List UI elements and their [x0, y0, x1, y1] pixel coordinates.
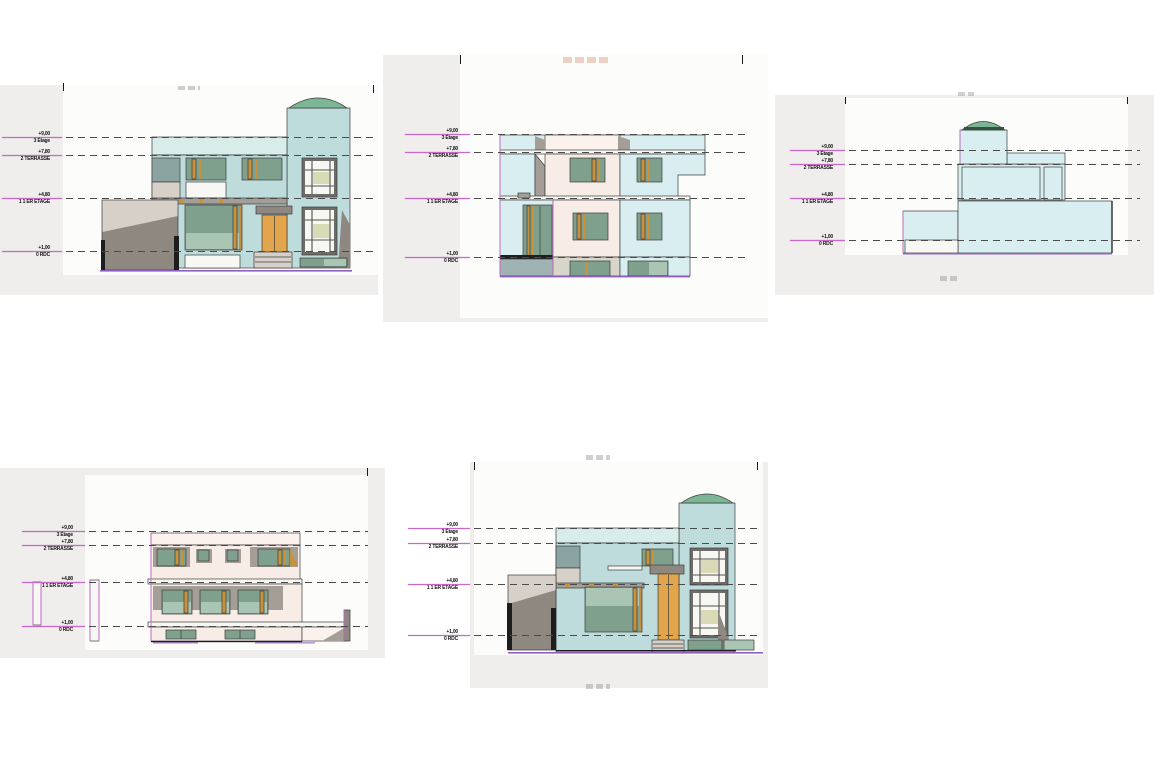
level-name: 0 RDC: [22, 627, 85, 633]
rear-elevation-drawing: [383, 55, 768, 322]
level-marker-3-etage: +9,00 3 Étage: [405, 128, 470, 141]
door-canopy: [256, 206, 292, 214]
level-name: 1 1 ER ETAGE: [2, 199, 62, 205]
level-dash-line: [89, 626, 368, 627]
front-elevation-drawing: [0, 85, 378, 295]
stepped-wall: [620, 154, 705, 198]
level-name: 2 TERRASSE: [790, 165, 845, 171]
level-dash-line: [849, 198, 1140, 199]
level-dash-line: [474, 635, 760, 636]
level-marker-1er-etage: +4,80 1 1 ER ETAGE: [2, 192, 62, 205]
level-name: 1 1 ER ETAGE: [790, 199, 845, 205]
level-dash-line: [66, 137, 378, 138]
level-dash-line: [474, 134, 750, 135]
level-name: 0 RDC: [405, 258, 470, 264]
level-marker-rdc: +1,00 0 RDC: [408, 629, 470, 642]
level-dash-line: [849, 240, 1140, 241]
level-name: 3 Étage: [22, 532, 85, 538]
front-elevation-2-drawing: [470, 462, 768, 688]
level-marker-3-etage: +9,00 3 Étage: [790, 144, 845, 157]
level-name: 2 TERRASSE: [22, 546, 85, 552]
level-name: 2 TERRASSE: [408, 544, 470, 550]
level-marker-1er-etage: +4,80 1 1 ER ETAGE: [408, 578, 470, 591]
level-name: 0 RDC: [2, 252, 62, 258]
level-name: 0 RDC: [408, 636, 470, 642]
big-window: [585, 587, 642, 632]
garage-door-strip: [185, 255, 240, 268]
level-name: 3 Étage: [2, 138, 62, 144]
building-front: [100, 98, 352, 272]
level-marker-3-etage: +9,00 3 Étage: [2, 131, 62, 144]
level-name: 3 Étage: [790, 151, 845, 157]
ghost-label: [178, 86, 200, 90]
level-marker-1er-etage: +4,80 1 1 ER ETAGE: [790, 192, 845, 205]
extent-tick: [474, 462, 475, 470]
level-dash-line: [66, 251, 378, 252]
entry-steps: [254, 252, 292, 268]
building-side: [903, 122, 1112, 255]
level-dash-line: [849, 164, 1140, 165]
level-marker-rdc: +1,00 0 RDC: [790, 234, 845, 247]
ghost-label: [958, 92, 974, 96]
ghost-label: [940, 276, 960, 281]
ghost-label: [586, 455, 610, 460]
door-canopy: [650, 565, 684, 574]
level-dash-line: [474, 543, 760, 544]
level-marker-terrasse: +7,80 2 TERRASSE: [408, 537, 470, 550]
basement-windows: [688, 640, 754, 650]
extent-tick: [367, 468, 368, 476]
balcony-parapet: [186, 182, 226, 198]
basement-window: [300, 258, 347, 267]
dome-icon: [962, 122, 1005, 131]
big-window: [185, 205, 242, 250]
dome-icon: [289, 98, 347, 108]
level-name: 0 RDC: [790, 241, 845, 247]
level-dash-line: [474, 152, 750, 153]
extent-tick: [845, 97, 846, 104]
level-name: 1 1 ER ETAGE: [408, 585, 470, 591]
level-name: 1 1 ER ETAGE: [22, 583, 85, 589]
level-name: 2 TERRASSE: [2, 156, 62, 162]
level-marker-1er-etage: +4,80 1 1 ER ETAGE: [22, 576, 85, 589]
level-marker-rdc: +1,00 0 RDC: [22, 620, 85, 633]
level-dash-line: [474, 257, 750, 258]
level-marker-terrasse: +7,80 2 TERRASSE: [790, 158, 845, 171]
extent-tick: [460, 55, 461, 64]
level-dash-line: [89, 582, 368, 583]
extent-tick: [63, 83, 64, 91]
ground-line: [508, 652, 763, 654]
extent-tick: [757, 462, 758, 470]
level-dash-line: [66, 155, 378, 156]
garage-shadow: [101, 200, 179, 270]
level-marker-rdc: +1,00 0 RDC: [405, 251, 470, 264]
elevation-sheet: +9,00 3 Étage +7,80 2 TERRASSE +4,80 1 1…: [0, 0, 1154, 768]
parapet-band: [152, 137, 287, 155]
level-name: 2 TERRASSE: [405, 153, 470, 159]
level-dash-line: [474, 198, 750, 199]
level-marker-terrasse: +7,80 2 TERRASSE: [2, 149, 62, 162]
level-name: 3 Étage: [408, 529, 470, 535]
level-marker-terrasse: +7,80 2 TERRASSE: [22, 539, 85, 552]
level-dash-line: [89, 531, 368, 532]
level-dash-line: [849, 150, 1140, 151]
garage-shadow: [507, 575, 556, 650]
parapet-band: [556, 528, 679, 543]
level-marker-1er-etage: +4,80 1 1 ER ETAGE: [405, 192, 470, 205]
level-name: 3 Étage: [405, 135, 470, 141]
first-floor-windows: [162, 590, 268, 614]
dome-icon: [681, 494, 733, 503]
parapet-band: [151, 533, 300, 545]
ground-line: [903, 253, 1112, 255]
extent-tick: [373, 85, 374, 93]
extent-tick: [742, 55, 743, 64]
ground-line: [500, 276, 690, 277]
ghost-label: [586, 684, 610, 689]
level-marker-rdc: +1,00 0 RDC: [2, 245, 62, 258]
level-dash-line: [89, 545, 368, 546]
building-front-2: [507, 494, 763, 654]
level-dash-line: [474, 528, 760, 529]
level-dash-line: [66, 198, 378, 199]
level-marker-3-etage: +9,00 3 Étage: [22, 525, 85, 538]
level-dash-line: [474, 584, 760, 585]
extent-tick: [1127, 97, 1128, 104]
ground-floor: [500, 255, 690, 276]
ground-line: [100, 270, 352, 272]
level-marker-3-etage: +9,00 3 Étage: [408, 522, 470, 535]
ghost-label: [563, 57, 609, 63]
level-marker-terrasse: +7,80 2 TERRASSE: [405, 146, 470, 159]
level-name: 1 1 ER ETAGE: [405, 199, 470, 205]
